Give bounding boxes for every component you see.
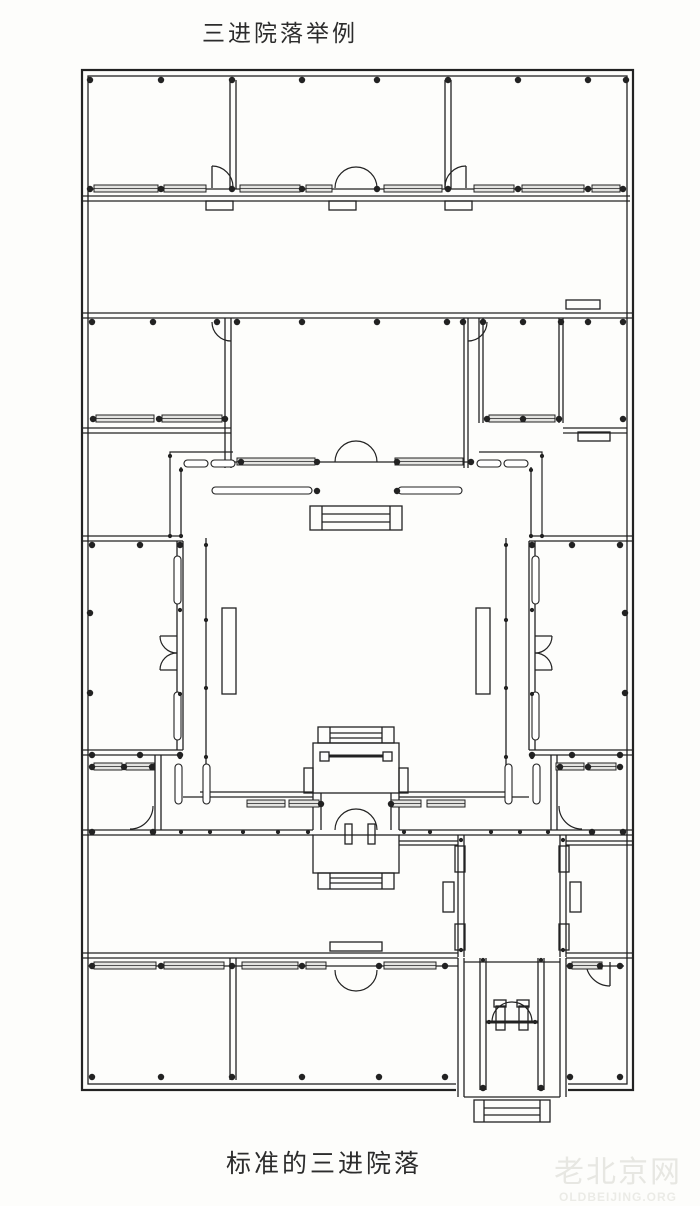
- floor-plan-svg: [0, 0, 700, 1206]
- erase-layer: [456, 1076, 568, 1094]
- veranda-sills: [174, 460, 540, 804]
- window-strips: [94, 185, 620, 969]
- scanned-floorplan-page: 三进院落举例 标准的三进院落 老北京网 OLDBEIJING.ORG: [0, 0, 700, 1206]
- columns: [87, 77, 629, 1091]
- plan-caption: 标准的三进院落: [226, 1144, 422, 1180]
